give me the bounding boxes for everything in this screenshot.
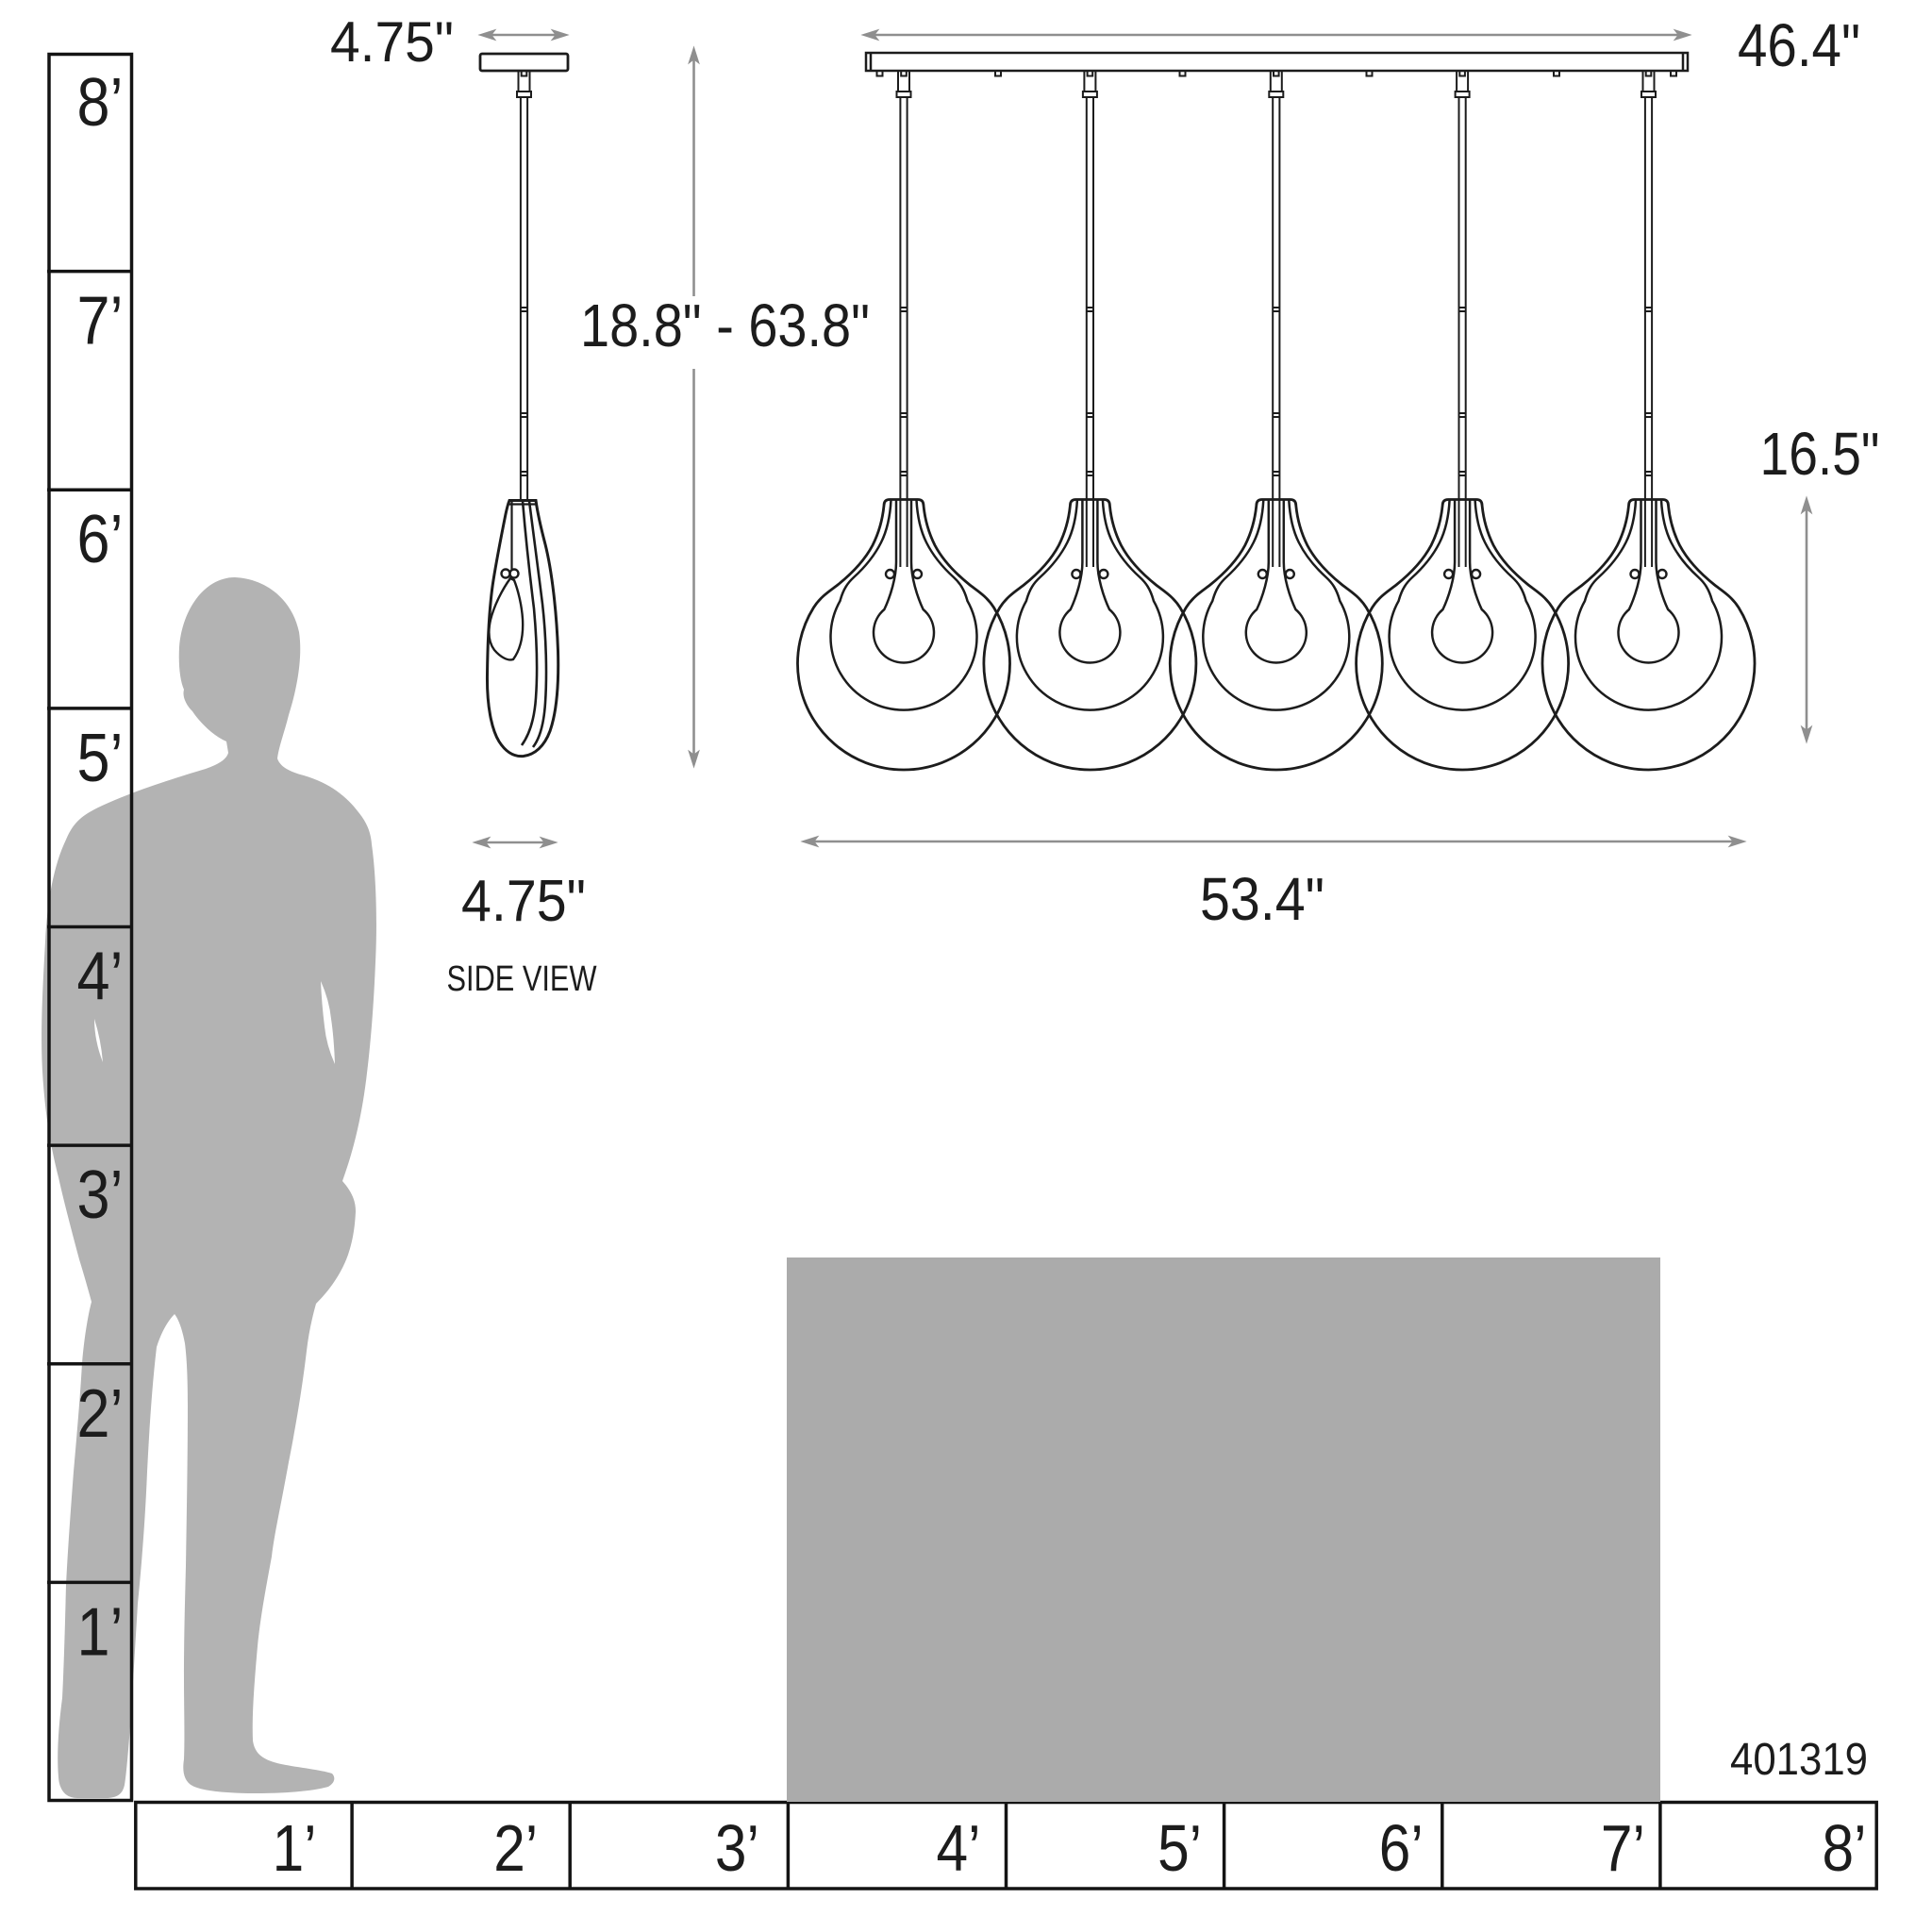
svg-text:2’: 2’ bbox=[77, 1376, 124, 1452]
svg-text:53.4": 53.4" bbox=[1200, 865, 1324, 933]
svg-text:4.75": 4.75" bbox=[461, 869, 586, 934]
svg-text:401319: 401319 bbox=[1730, 1735, 1868, 1785]
svg-text:8’: 8’ bbox=[77, 65, 124, 141]
svg-text:4’: 4’ bbox=[77, 940, 124, 1015]
svg-text:2’: 2’ bbox=[493, 1811, 538, 1885]
svg-text:SIDE VIEW: SIDE VIEW bbox=[447, 959, 597, 999]
svg-text:7’: 7’ bbox=[77, 284, 124, 359]
svg-text:1’: 1’ bbox=[77, 1594, 124, 1670]
svg-text:8’: 8’ bbox=[1823, 1811, 1867, 1885]
svg-text:46.4": 46.4" bbox=[1738, 11, 1860, 79]
svg-text:4.75": 4.75" bbox=[330, 10, 454, 74]
svg-text:3’: 3’ bbox=[715, 1811, 759, 1885]
svg-text:5’: 5’ bbox=[1158, 1811, 1202, 1885]
svg-text:5’: 5’ bbox=[77, 721, 124, 796]
svg-text:3’: 3’ bbox=[77, 1158, 124, 1233]
svg-text:16.5": 16.5" bbox=[1760, 420, 1880, 488]
svg-text:4’: 4’ bbox=[937, 1811, 981, 1885]
svg-text:7’: 7’ bbox=[1601, 1811, 1645, 1885]
svg-text:6’: 6’ bbox=[1379, 1811, 1424, 1885]
svg-text:6’: 6’ bbox=[77, 502, 124, 577]
svg-text:1’: 1’ bbox=[273, 1811, 317, 1885]
svg-text:18.8" - 63.8": 18.8" - 63.8" bbox=[580, 291, 870, 359]
